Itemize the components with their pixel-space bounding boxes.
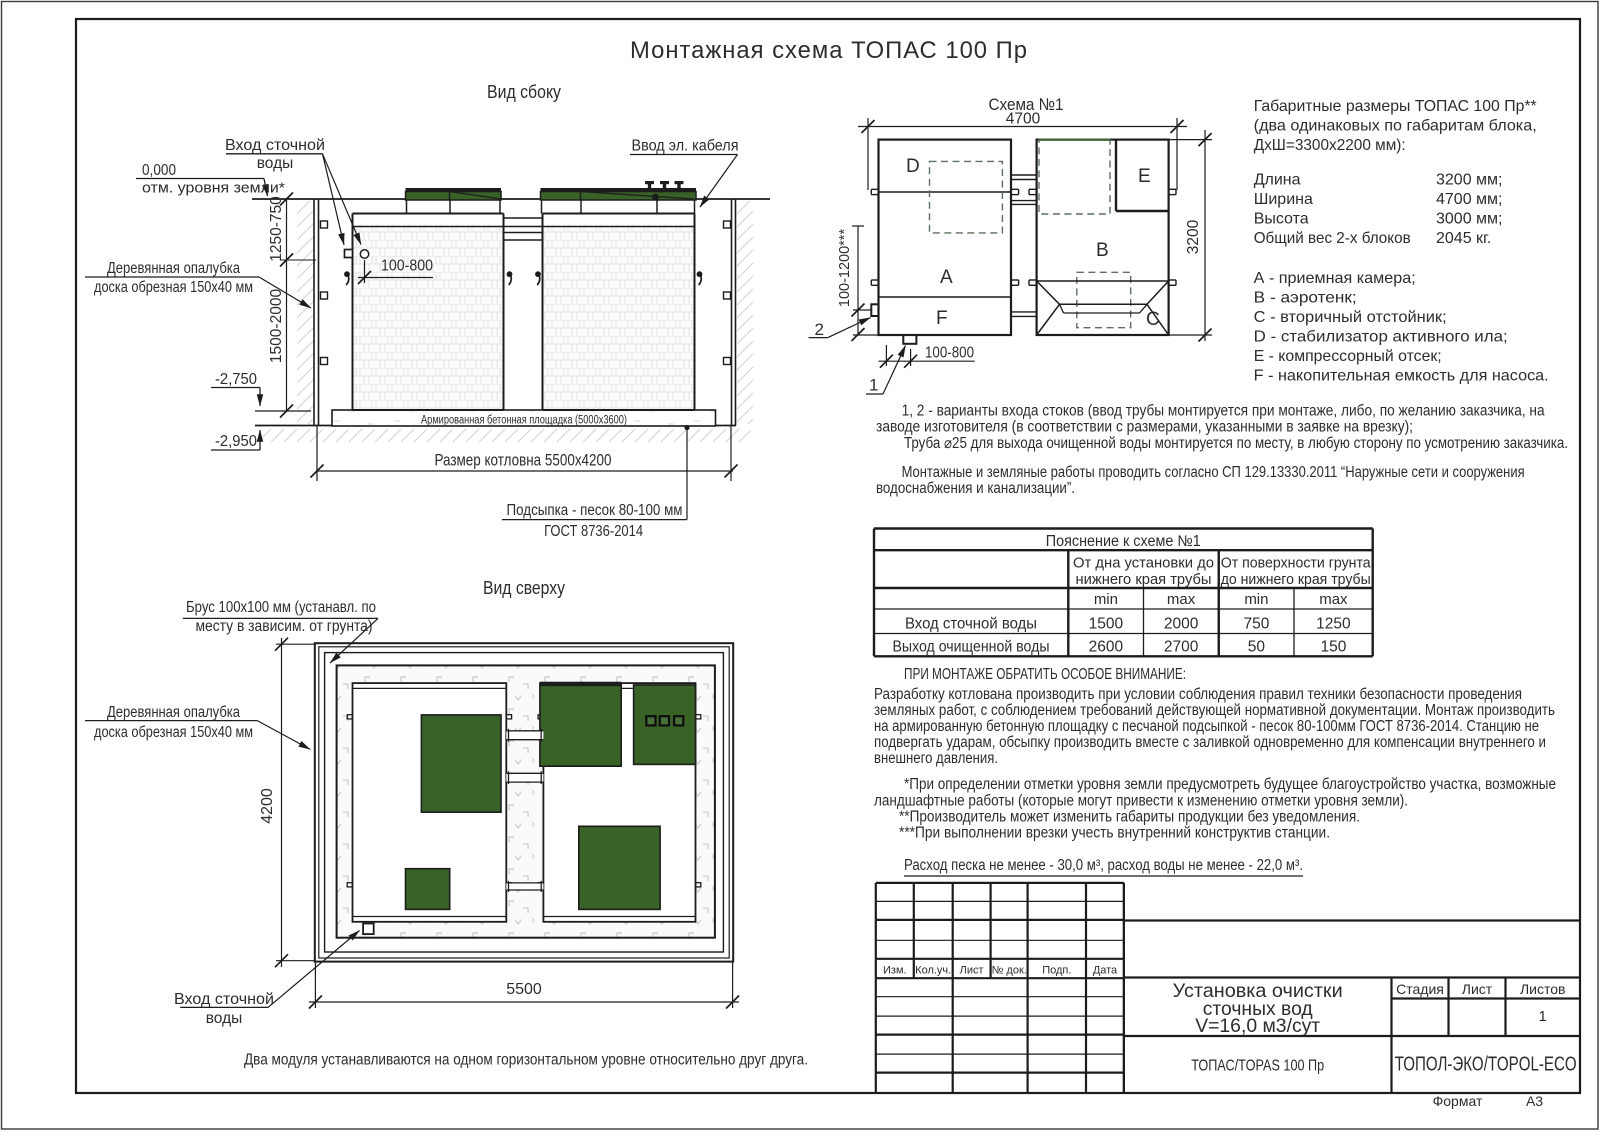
svg-text:Ширина: Ширина: [1254, 191, 1313, 208]
svg-text:водоснабжения и канализации”.: водоснабжения и канализации”.: [876, 480, 1075, 497]
svg-text:А - приемная камера;: А - приемная камера;: [1254, 270, 1416, 287]
svg-text:100-1200***: 100-1200***: [837, 229, 853, 308]
svg-text:4200: 4200: [259, 788, 276, 824]
svg-text:4700 мм;: 4700 мм;: [1436, 191, 1502, 208]
svg-text:100-800: 100-800: [381, 258, 433, 275]
svg-text:Лист: Лист: [960, 965, 984, 977]
svg-text:Подп.: Подп.: [1042, 965, 1071, 977]
svg-text:на армированную бетонную площа: на армированную бетонную площадку с песч…: [874, 718, 1539, 735]
svg-text:3200 мм;: 3200 мм;: [1436, 172, 1502, 189]
svg-text:Деревянная опалубка: Деревянная опалубка: [107, 260, 240, 277]
svg-text:Дата: Дата: [1093, 965, 1118, 977]
svg-text:ГОСТ 8736-2014: ГОСТ 8736-2014: [544, 523, 643, 540]
svg-text:1500-2000: 1500-2000: [268, 289, 285, 364]
svg-text:100-800: 100-800: [925, 345, 974, 362]
svg-text:min: min: [1094, 591, 1118, 608]
svg-text:1, 2 - варианты входа стоков: 1, 2 - варианты входа стоков (ввод трубы…: [902, 402, 1545, 419]
svg-text:50: 50: [1248, 639, 1266, 656]
svg-text:Формат: Формат: [1433, 1093, 1483, 1109]
svg-text:150: 150: [1320, 639, 1346, 656]
svg-text:5500: 5500: [506, 981, 542, 998]
svg-text:1250: 1250: [1316, 616, 1351, 633]
svg-text:E: E: [1138, 166, 1151, 187]
svg-text:От поверхности грунта: От поверхности грунта: [1221, 555, 1372, 572]
svg-text:-2,950: -2,950: [215, 433, 257, 450]
svg-text:max: max: [1167, 591, 1196, 608]
svg-text:Монтажные и земляные работы пр: Монтажные и земляные работы проводить со…: [902, 464, 1525, 481]
svg-text:(два одинаковых по габаритам б: (два одинаковых по габаритам блока,: [1254, 118, 1537, 135]
svg-text:Расход песка не менее - 30,0 м: Расход песка не менее - 30,0 м³, расход …: [904, 857, 1303, 874]
svg-text:ТОПАС/TOPAS 100 Пр: ТОПАС/TOPAS 100 Пр: [1191, 1058, 1324, 1075]
svg-text:D - стабилизатор активного ила: D - стабилизатор активного ила;: [1254, 329, 1508, 346]
svg-text:V=16,0 м3/сут: V=16,0 м3/сут: [1195, 1015, 1320, 1037]
svg-text:ландшафтные работы (которые мо: ландшафтные работы (которые могут привес…: [874, 792, 1408, 809]
svg-text:2: 2: [815, 320, 824, 339]
svg-text:Разработку котлована производи: Разработку котлована производить при усл…: [874, 686, 1522, 703]
svg-text:Два модуля устанавливаются на: Два модуля устанавливаются на одном гори…: [244, 1051, 808, 1068]
svg-text:Размер котловна 5500х4200: Размер котловна 5500х4200: [435, 452, 612, 470]
svg-text:до нижнего края трубы: до нижнего края трубы: [1221, 571, 1371, 588]
svg-text:№ док.: № док.: [992, 965, 1027, 977]
svg-text:1: 1: [869, 376, 878, 395]
svg-text:А3: А3: [1526, 1093, 1543, 1109]
svg-text:Листов: Листов: [1520, 981, 1566, 997]
svg-text:**Производитель может изменить: **Производитель может изменить габариты …: [899, 809, 1360, 826]
svg-text:max: max: [1319, 591, 1348, 608]
svg-text:2600: 2600: [1089, 639, 1124, 656]
svg-text:750: 750: [1243, 616, 1269, 633]
svg-text:Вход сточной воды: Вход сточной воды: [905, 616, 1037, 633]
svg-text:*При определении отметки уровн: *При определении отметки уровня земли пр…: [904, 776, 1556, 793]
svg-text:F: F: [936, 308, 948, 329]
svg-text:3000 мм;: 3000 мм;: [1436, 211, 1502, 228]
svg-text:Подсыпка - песок 80-100 мм: Подсыпка - песок 80-100 мм: [507, 502, 683, 519]
svg-text:нижнего края трубы: нижнего края трубы: [1076, 571, 1212, 588]
svg-text:2700: 2700: [1164, 639, 1199, 656]
svg-text:Е - компрессорный отсек;: Е - компрессорный отсек;: [1254, 348, 1442, 365]
svg-text:ТОПОЛ-ЭКО/TOPOL-ECO: ТОПОЛ-ЭКО/TOPOL-ECO: [1395, 1054, 1577, 1076]
svg-text:месту в зависим. от грунта): месту в зависим. от грунта): [196, 618, 373, 635]
svg-text:2045 кг.: 2045 кг.: [1436, 230, 1491, 247]
svg-text:3200: 3200: [1185, 219, 1202, 254]
svg-text:Длина: Длина: [1254, 172, 1301, 189]
svg-text:Вид сбоку: Вид сбоку: [487, 82, 561, 102]
svg-text:подвергать ударам, обсыпку про: подвергать ударам, обсыпку производить в…: [874, 734, 1546, 751]
svg-text:min: min: [1244, 591, 1268, 608]
svg-text:0,000: 0,000: [142, 162, 176, 179]
svg-text:D: D: [906, 156, 920, 177]
svg-text:земляных работ, с соблюдением: земляных работ, с соблюдением требований…: [874, 702, 1555, 719]
svg-text:доска обрезная 150х40 мм: доска обрезная 150х40 мм: [94, 279, 253, 296]
svg-text:Стадия: Стадия: [1396, 981, 1444, 997]
svg-text:воды: воды: [257, 155, 294, 172]
svg-text:воды: воды: [206, 1010, 243, 1027]
svg-text:Вход сточной: Вход сточной: [174, 991, 274, 1008]
svg-text:внешнего давления.: внешнего давления.: [874, 750, 998, 767]
svg-text:Монтажная схема ТОПАС 100 Пр: Монтажная схема ТОПАС 100 Пр: [630, 37, 1028, 64]
svg-text:B: B: [1096, 240, 1109, 261]
svg-text:-2,750: -2,750: [215, 371, 257, 388]
svg-text:4700: 4700: [1006, 111, 1041, 128]
svg-text:В - аэротенк;: В - аэротенк;: [1254, 290, 1357, 307]
svg-text:Общий вес 2-х блоков: Общий вес 2-х блоков: [1254, 230, 1411, 247]
svg-text:***При выполнении врезки учест: ***При выполнении врезки учесть внутренн…: [899, 825, 1330, 842]
svg-text:Вход сточной: Вход сточной: [225, 137, 325, 154]
svg-text:F - накопительная емкость для: F - накопительная емкость для насоса.: [1254, 368, 1549, 385]
svg-text:Изм.: Изм.: [883, 965, 907, 977]
svg-text:1: 1: [1539, 1008, 1547, 1025]
svg-text:отм. уровня земли*: отм. уровня земли*: [142, 180, 285, 197]
svg-text:Брус 100х100 мм (устанавл. по: Брус 100х100 мм (устанавл. по: [186, 599, 376, 616]
svg-text:Труба ⌀25 для выхода очищенной: Труба ⌀25 для выхода очищенной воды монт…: [904, 435, 1568, 452]
svg-text:Выход очищенной воды: Выход очищенной воды: [893, 639, 1050, 656]
svg-text:Ввод эл. кабеля: Ввод эл. кабеля: [632, 138, 739, 155]
svg-text:Пояснение к схеме №1: Пояснение к схеме №1: [1046, 533, 1201, 550]
svg-text:доска обрезная 150х40 мм: доска обрезная 150х40 мм: [94, 724, 253, 741]
svg-text:ПРИ МОНТАЖЕ ОБРАТИТЬ ОСОБОЕ ВН: ПРИ МОНТАЖЕ ОБРАТИТЬ ОСОБОЕ ВНИМАНИЕ:: [904, 666, 1186, 683]
svg-text:ДхШ=3300х2200 мм):: ДхШ=3300х2200 мм):: [1254, 137, 1406, 154]
svg-text:2000: 2000: [1164, 616, 1199, 633]
svg-text:A: A: [940, 267, 953, 288]
svg-text:Габаритные размеры ТОПАС 100 П: Габаритные размеры ТОПАС 100 Пр**: [1254, 98, 1537, 115]
svg-text:Вид сверху: Вид сверху: [483, 578, 565, 598]
svg-text:заводе изготовителя (в соответ: заводе изготовителя (в соответствии с ра…: [876, 419, 1413, 436]
svg-text:Армированная бетонная площадка: Армированная бетонная площадка (5000х360…: [421, 415, 627, 427]
svg-text:Деревянная опалубка: Деревянная опалубка: [107, 704, 240, 721]
svg-text:Кол.уч.: Кол.уч.: [915, 965, 951, 977]
svg-text:С - вторичный отстойник;: С - вторичный отстойник;: [1254, 309, 1447, 326]
svg-text:1500: 1500: [1089, 616, 1124, 633]
svg-text:1250-750: 1250-750: [268, 196, 285, 262]
svg-text:Высота: Высота: [1254, 211, 1309, 228]
svg-text:От дна установки до: От дна установки до: [1073, 555, 1214, 572]
svg-text:Лист: Лист: [1462, 981, 1493, 997]
